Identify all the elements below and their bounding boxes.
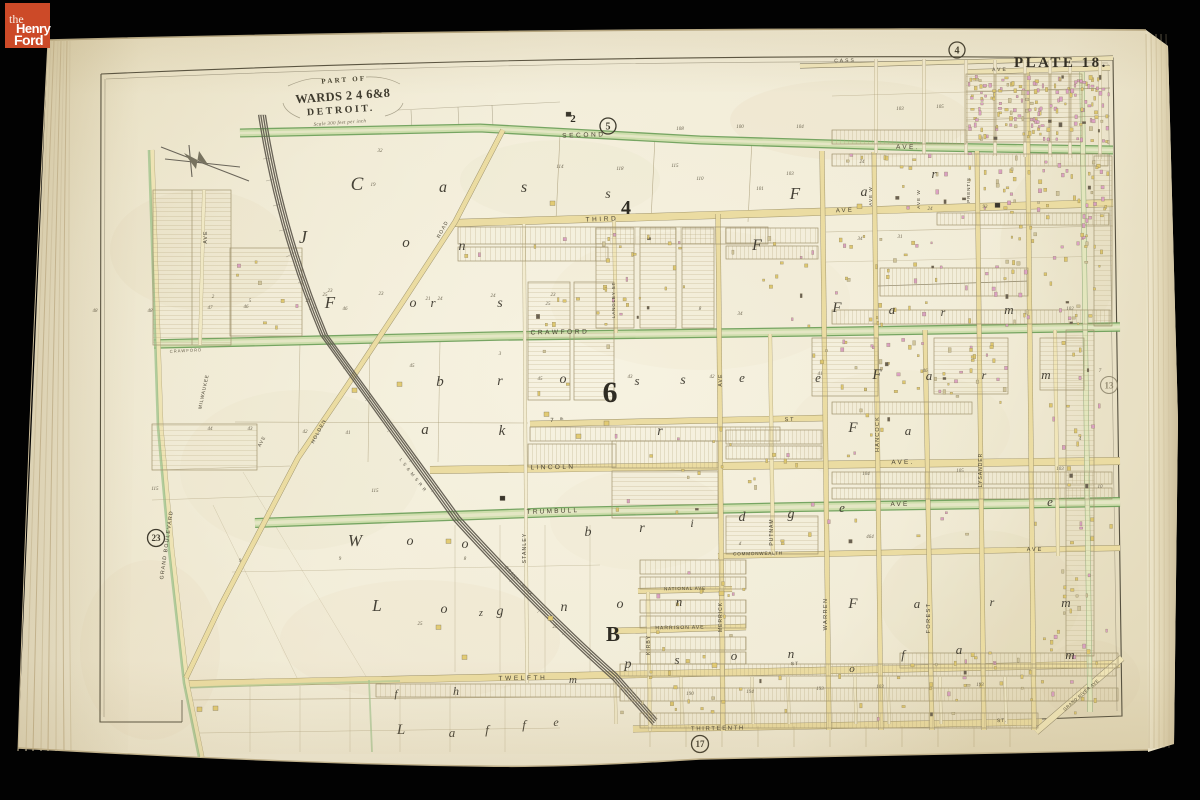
svg-text:42: 42 [303, 430, 309, 435]
svg-text:41: 41 [346, 431, 351, 436]
svg-text:o: o [560, 372, 567, 387]
svg-text:24: 24 [491, 294, 497, 299]
svg-text:a: a [439, 179, 447, 196]
svg-text:34: 34 [858, 237, 864, 242]
svg-text:n: n [676, 594, 683, 609]
svg-text:AVE: AVE [1027, 547, 1044, 553]
svg-text:43: 43 [248, 427, 254, 432]
svg-text:e: e [739, 370, 745, 385]
svg-text:THIRD: THIRD [585, 215, 618, 223]
svg-text:o: o [407, 534, 414, 549]
svg-text:m: m [1061, 595, 1070, 610]
svg-text:42: 42 [710, 375, 716, 380]
svg-text:a: a [914, 596, 921, 611]
svg-text:25: 25 [546, 302, 552, 307]
svg-text:44: 44 [208, 427, 214, 432]
svg-text:MERRICK: MERRICK [718, 602, 724, 632]
svg-text:r: r [941, 305, 946, 319]
svg-text:23: 23 [551, 293, 557, 298]
svg-text:103: 103 [1056, 467, 1064, 472]
svg-text:s: s [521, 179, 527, 196]
svg-text:a: a [905, 423, 912, 438]
svg-text:Ford: Ford [14, 32, 43, 48]
svg-text:AVE.: AVE. [896, 144, 920, 151]
svg-text:ST: ST [785, 417, 796, 423]
svg-text:115: 115 [371, 489, 379, 494]
svg-text:102: 102 [1066, 307, 1074, 312]
svg-text:LYSANDER: LYSANDER [978, 453, 984, 488]
svg-text:24: 24 [928, 207, 934, 212]
svg-text:115: 115 [151, 487, 159, 492]
svg-text:F: F [847, 596, 858, 612]
svg-text:F: F [789, 184, 801, 203]
svg-text:46: 46 [343, 307, 349, 312]
svg-text:25: 25 [418, 622, 424, 627]
svg-text:e: e [839, 500, 845, 515]
svg-text:F: F [831, 300, 842, 316]
svg-text:L: L [371, 596, 381, 615]
svg-text:n: n [459, 239, 466, 254]
svg-text:19: 19 [371, 183, 377, 188]
svg-text:HANCOCK: HANCOCK [875, 416, 881, 452]
svg-text:4: 4 [621, 197, 631, 219]
svg-text:104: 104 [862, 472, 870, 477]
svg-text:r: r [990, 595, 995, 609]
svg-text:23: 23 [379, 292, 385, 297]
svg-text:5: 5 [606, 122, 611, 133]
svg-text:s: s [497, 296, 503, 311]
svg-text:46: 46 [244, 305, 250, 310]
svg-text:103: 103 [896, 107, 904, 112]
svg-text:13: 13 [1105, 380, 1115, 390]
svg-text:m: m [1065, 647, 1074, 662]
svg-text:s: s [680, 373, 686, 388]
svg-text:47: 47 [208, 306, 214, 311]
svg-text:s: s [605, 187, 611, 202]
svg-text:o: o [410, 296, 417, 311]
svg-text:o: o [617, 597, 624, 612]
svg-text:LINCOLN: LINCOLN [530, 464, 575, 472]
svg-text:STANLEY: STANLEY [522, 533, 528, 564]
svg-text:31: 31 [898, 235, 903, 240]
svg-text:105: 105 [956, 469, 964, 474]
svg-text:m: m [1004, 302, 1013, 317]
svg-text:45: 45 [538, 377, 544, 382]
svg-text:105: 105 [936, 105, 944, 110]
svg-text:AVE: AVE [718, 373, 724, 386]
svg-text:WARREN: WARREN [823, 598, 829, 631]
svg-text:104: 104 [796, 125, 804, 130]
svg-text:464: 464 [866, 535, 874, 540]
svg-text:10: 10 [1098, 485, 1104, 490]
svg-text:o: o [441, 602, 448, 617]
svg-text:23: 23 [306, 299, 312, 304]
svg-text:B: B [606, 622, 620, 646]
svg-text:24: 24 [438, 297, 444, 302]
svg-text:b: b [585, 525, 592, 540]
svg-text:NATIONAL AVE: NATIONAL AVE [664, 586, 706, 592]
svg-text:a: a [421, 422, 429, 438]
svg-text:m: m [1041, 367, 1050, 382]
svg-text:F: F [847, 420, 858, 436]
svg-text:COMMONWEALTH: COMMONWEALTH [733, 551, 783, 557]
svg-text:th: th [560, 416, 563, 421]
svg-text:AVE: AVE [836, 208, 854, 215]
svg-text:o: o [462, 537, 469, 552]
svg-text:b: b [436, 374, 444, 390]
svg-text:z: z [478, 608, 483, 619]
svg-text:HARRISON AVE: HARRISON AVE [655, 625, 704, 632]
svg-text:F: F [871, 367, 882, 383]
svg-text:34: 34 [738, 312, 744, 317]
svg-text:45: 45 [410, 364, 416, 369]
svg-text:AVE.: AVE. [891, 459, 914, 466]
svg-text:k: k [499, 423, 506, 439]
svg-text:d: d [739, 510, 747, 525]
svg-text:r: r [657, 424, 663, 439]
svg-text:2: 2 [570, 113, 576, 125]
svg-text:93: 93 [983, 205, 989, 210]
svg-text:103: 103 [786, 172, 794, 177]
svg-text:a: a [889, 302, 896, 317]
svg-text:115: 115 [671, 164, 679, 169]
svg-text:a: a [861, 185, 868, 200]
svg-text:AVE: AVE [890, 501, 909, 508]
svg-text:25: 25 [553, 625, 559, 630]
svg-text:r: r [982, 368, 987, 382]
svg-text:o: o [402, 235, 410, 251]
svg-text:21: 21 [426, 297, 431, 302]
svg-text:i: i [690, 516, 693, 530]
svg-text:s: s [634, 373, 639, 388]
svg-text:CRAWFORD: CRAWFORD [530, 328, 589, 336]
svg-text:AVE W: AVE W [868, 186, 873, 205]
svg-text:e: e [1047, 494, 1053, 509]
svg-text:100: 100 [736, 125, 744, 130]
svg-text:118: 118 [616, 167, 624, 172]
svg-text:24: 24 [860, 160, 866, 165]
svg-text:41: 41 [818, 372, 823, 377]
svg-text:r: r [639, 521, 645, 536]
svg-text:a: a [956, 642, 963, 657]
svg-text:PRENTIS: PRENTIS [966, 177, 971, 203]
svg-text:101: 101 [756, 187, 764, 192]
svg-text:KIRBY: KIRBY [646, 635, 652, 655]
svg-text:n: n [561, 600, 568, 615]
svg-text:FOREST: FOREST [926, 603, 932, 634]
svg-text:23: 23 [152, 533, 162, 543]
svg-text:PUTNAM: PUTNAM [769, 518, 775, 545]
svg-text:46: 46 [923, 369, 929, 374]
svg-text:J: J [299, 227, 308, 247]
svg-text:r: r [497, 374, 503, 389]
svg-text:AVE W: AVE W [916, 189, 921, 208]
svg-text:32: 32 [378, 149, 384, 154]
svg-text:C: C [351, 174, 364, 195]
svg-text:F: F [751, 237, 762, 254]
svg-text:6: 6 [603, 376, 618, 409]
svg-text:LANGLEY ST: LANGLEY ST [611, 282, 616, 318]
svg-text:48: 48 [148, 309, 154, 314]
svg-text:AVE: AVE [203, 230, 209, 243]
svg-text:n: n [788, 646, 795, 661]
svg-text:114: 114 [556, 165, 564, 170]
svg-text:43: 43 [628, 375, 634, 380]
svg-text:W: W [348, 531, 364, 550]
svg-text:23: 23 [328, 289, 334, 294]
svg-text:110: 110 [696, 177, 704, 182]
svg-text:g: g [497, 604, 504, 619]
svg-text:108: 108 [676, 127, 684, 132]
